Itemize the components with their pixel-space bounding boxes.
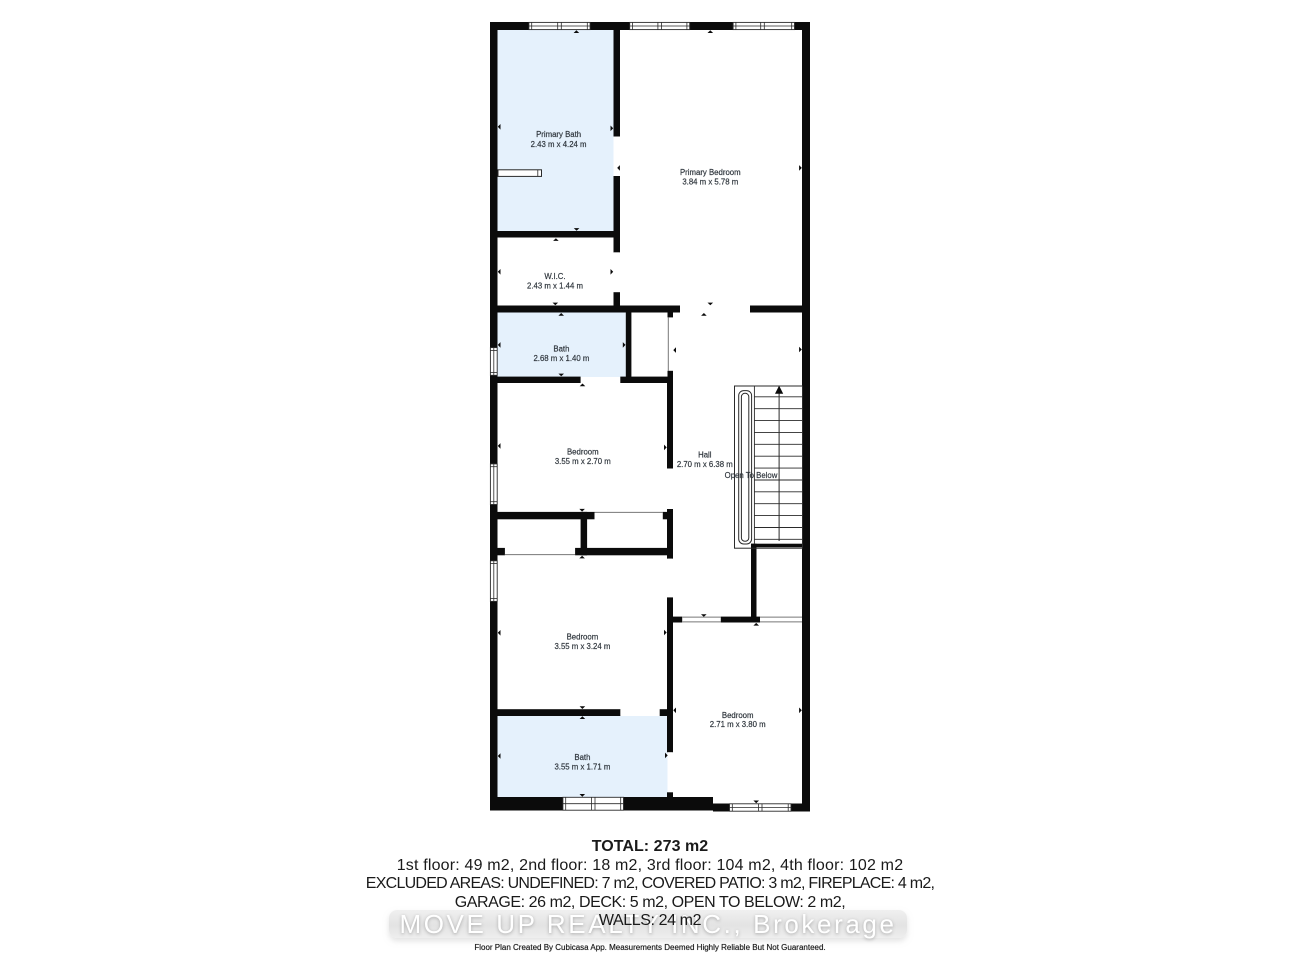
svg-text:3.55 m x 2.70 m: 3.55 m x 2.70 m xyxy=(555,457,611,466)
svg-text:Bedroom: Bedroom xyxy=(567,447,599,456)
svg-text:Bedroom: Bedroom xyxy=(567,632,599,641)
svg-text:2.43 m x 4.24 m: 2.43 m x 4.24 m xyxy=(531,140,587,149)
svg-text:2.71 m x 3.80 m: 2.71 m x 3.80 m xyxy=(710,720,766,729)
svg-text:Primary Bedroom: Primary Bedroom xyxy=(680,168,741,177)
svg-text:Bath: Bath xyxy=(553,345,569,354)
svg-text:3.55 m x 1.71 m: 3.55 m x 1.71 m xyxy=(554,762,610,771)
svg-text:Bath: Bath xyxy=(574,753,590,762)
svg-text:Primary Bath: Primary Bath xyxy=(536,130,581,139)
svg-text:3.84 m x 5.78 m: 3.84 m x 5.78 m xyxy=(682,178,738,187)
svg-text:Bedroom: Bedroom xyxy=(722,711,754,720)
svg-text:Hall: Hall xyxy=(698,450,712,459)
svg-text:2.70 m x 6.38 m: 2.70 m x 6.38 m xyxy=(677,460,733,469)
svg-text:W.I.C.: W.I.C. xyxy=(544,272,565,281)
svg-text:2.43 m x 1.44 m: 2.43 m x 1.44 m xyxy=(527,282,583,291)
svg-text:Open To Below: Open To Below xyxy=(725,471,778,480)
svg-text:2.68 m x 1.40 m: 2.68 m x 1.40 m xyxy=(533,354,589,363)
svg-text:3.55 m x 3.24 m: 3.55 m x 3.24 m xyxy=(554,642,610,651)
